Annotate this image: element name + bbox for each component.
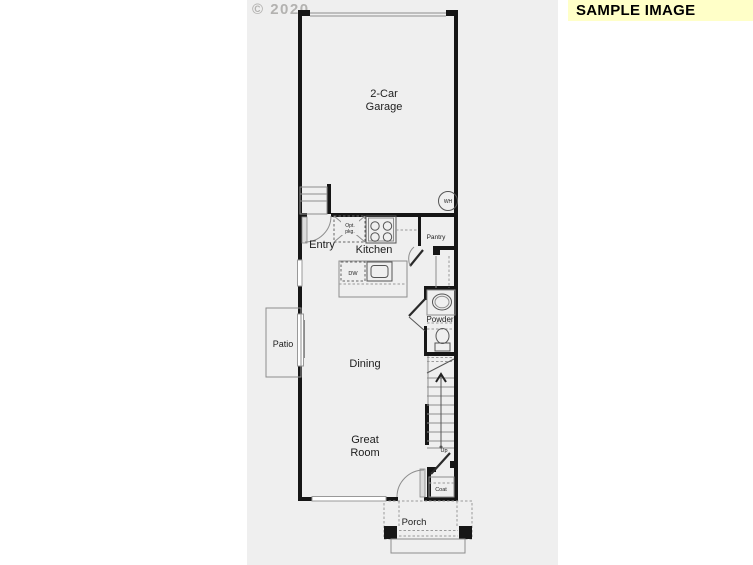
pantry-door	[409, 247, 423, 266]
room-label-powder: Powder	[426, 315, 453, 324]
floor-plan-drawing: WH Opt. pkg. DW	[0, 0, 753, 565]
porch-steps	[391, 539, 465, 553]
great-room-window	[298, 260, 303, 286]
room-label-garage-line1: 2-Car	[370, 88, 398, 100]
coat-closet: Coat	[429, 477, 454, 497]
dishwasher-label: DW	[348, 271, 358, 277]
entry-closet	[300, 187, 327, 214]
room-label-pantry: Pantry	[427, 234, 447, 241]
room-label-garage-line2: Garage	[366, 101, 403, 113]
toilet	[435, 329, 450, 352]
room-label-dining: Dining	[349, 358, 380, 370]
porch	[384, 501, 472, 553]
room-label-porch: Porch	[402, 517, 427, 528]
optional-package-box: Opt. pkg.	[334, 216, 365, 242]
room-label-great-line2: Room	[350, 447, 379, 459]
room-label-entry: Entry	[309, 239, 335, 251]
room-label-great-line1: Great	[351, 434, 379, 446]
opt-label-line2: pkg.	[345, 229, 354, 235]
coat-label: Coat	[435, 487, 447, 493]
pantry-wall	[418, 214, 421, 246]
porch-post	[384, 526, 397, 539]
water-heater-label: WH	[444, 199, 453, 205]
up-label: Up	[440, 448, 447, 454]
bottom-window	[312, 497, 386, 502]
kitchen-sink	[367, 262, 392, 281]
porch-post	[459, 526, 472, 539]
front-door	[397, 469, 425, 497]
powder-vanity-sink	[427, 290, 455, 315]
floorplan-page: © 2020 SAMPLE IMAGE	[0, 0, 753, 565]
room-label-patio: Patio	[273, 339, 294, 349]
stair-wall	[425, 404, 429, 445]
stove	[366, 216, 396, 243]
stairs: Up	[427, 356, 454, 454]
room-label-kitchen: Kitchen	[356, 244, 393, 256]
powder-wall	[424, 286, 455, 290]
coat-door	[431, 453, 450, 474]
fridge-nook	[436, 256, 449, 288]
kitchen-island: DW	[339, 261, 407, 297]
powder-door	[409, 299, 425, 331]
